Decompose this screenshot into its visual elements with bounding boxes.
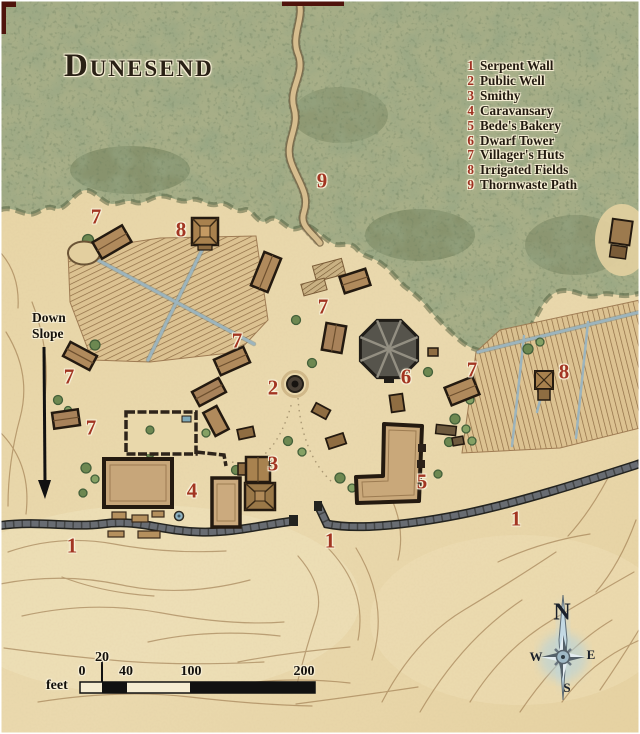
- public-well: [283, 372, 308, 397]
- field-shrine-east: [535, 371, 553, 400]
- map-artwork: [0, 0, 640, 734]
- field-shrine-west: [192, 218, 218, 250]
- dunesend-village-map: Dunesend 1Serpent Wall 2Public Well 3Smi…: [0, 0, 640, 734]
